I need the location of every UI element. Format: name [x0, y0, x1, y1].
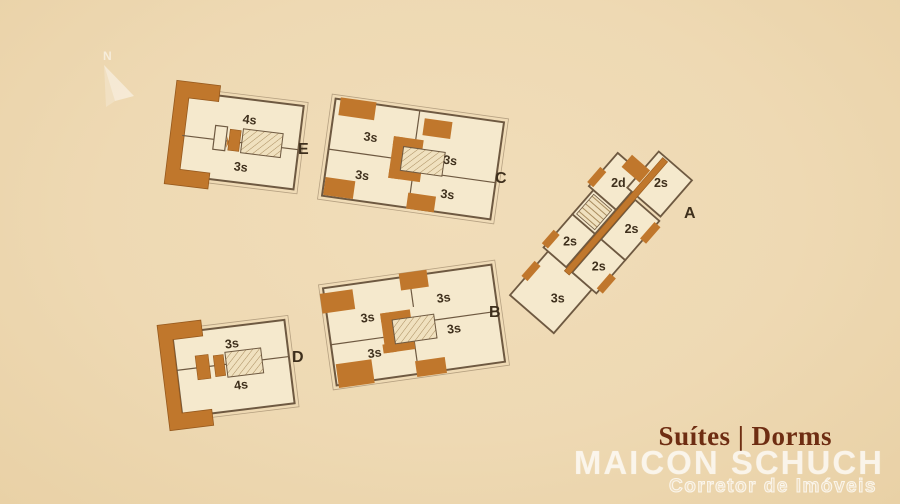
- brand-subtitle: Corretor de Imóveis: [669, 476, 877, 498]
- building-label-a: A: [684, 205, 696, 222]
- building-d-stairs-hatch: [225, 348, 264, 377]
- building-d: 3s 4s: [157, 309, 300, 430]
- unit-label-c-3s-br: 3s: [440, 187, 456, 203]
- building-e-stairs-hatch: [241, 129, 284, 158]
- unit-label-a-2s-lowerleft: 2s: [592, 260, 606, 274]
- unit-label-a-2s-end: 2s: [654, 176, 668, 190]
- compass-north-label: N: [103, 49, 112, 63]
- building-e: 4s 3s: [164, 80, 309, 199]
- building-d-core-block-1: [195, 354, 211, 379]
- building-e-elevator: [213, 125, 228, 150]
- compass: N: [103, 49, 134, 107]
- site-plan-page: N 4s 3s E: [0, 0, 900, 504]
- unit-label-e-3s: 3s: [233, 159, 249, 175]
- unit-label-c-3s-tl: 3s: [363, 129, 379, 145]
- building-b-balcony-bl: [336, 359, 375, 388]
- unit-label-a-2s-lowermid: 2s: [625, 222, 639, 236]
- unit-label-a-2s-upper: 2s: [563, 235, 577, 249]
- building-d-core-block-2: [213, 355, 225, 377]
- unit-label-b-3s-tl: 3s: [360, 310, 376, 326]
- unit-label-c-3s-bl: 3s: [354, 168, 370, 184]
- unit-label-a-2d: 2d: [611, 176, 626, 190]
- building-b: 3s 3s 3s 3s: [318, 260, 509, 390]
- unit-label-e-4s: 4s: [242, 112, 258, 128]
- building-label-c: C: [495, 170, 507, 187]
- unit-label-b-3s-tr: 3s: [436, 290, 452, 306]
- building-label-e: E: [298, 141, 309, 158]
- unit-label-c-3s-tr: 3s: [442, 153, 458, 169]
- unit-label-d-3s: 3s: [224, 336, 240, 352]
- unit-label-a-3s: 3s: [551, 292, 565, 306]
- unit-label-b-3s-bl: 3s: [367, 345, 383, 361]
- building-c: 3s 3s 3s 3s: [317, 94, 508, 224]
- building-b-stairs-hatch: [392, 314, 437, 344]
- unit-label-d-4s: 4s: [233, 377, 249, 393]
- unit-label-b-3s-br: 3s: [446, 321, 462, 337]
- building-c-stairs-hatch: [400, 147, 445, 177]
- building-label-b: B: [489, 304, 501, 321]
- building-label-d: D: [292, 349, 304, 366]
- building-e-core-block: [228, 129, 241, 151]
- building-a: 2d 2s 2s 2s 2s 3s: [498, 129, 697, 340]
